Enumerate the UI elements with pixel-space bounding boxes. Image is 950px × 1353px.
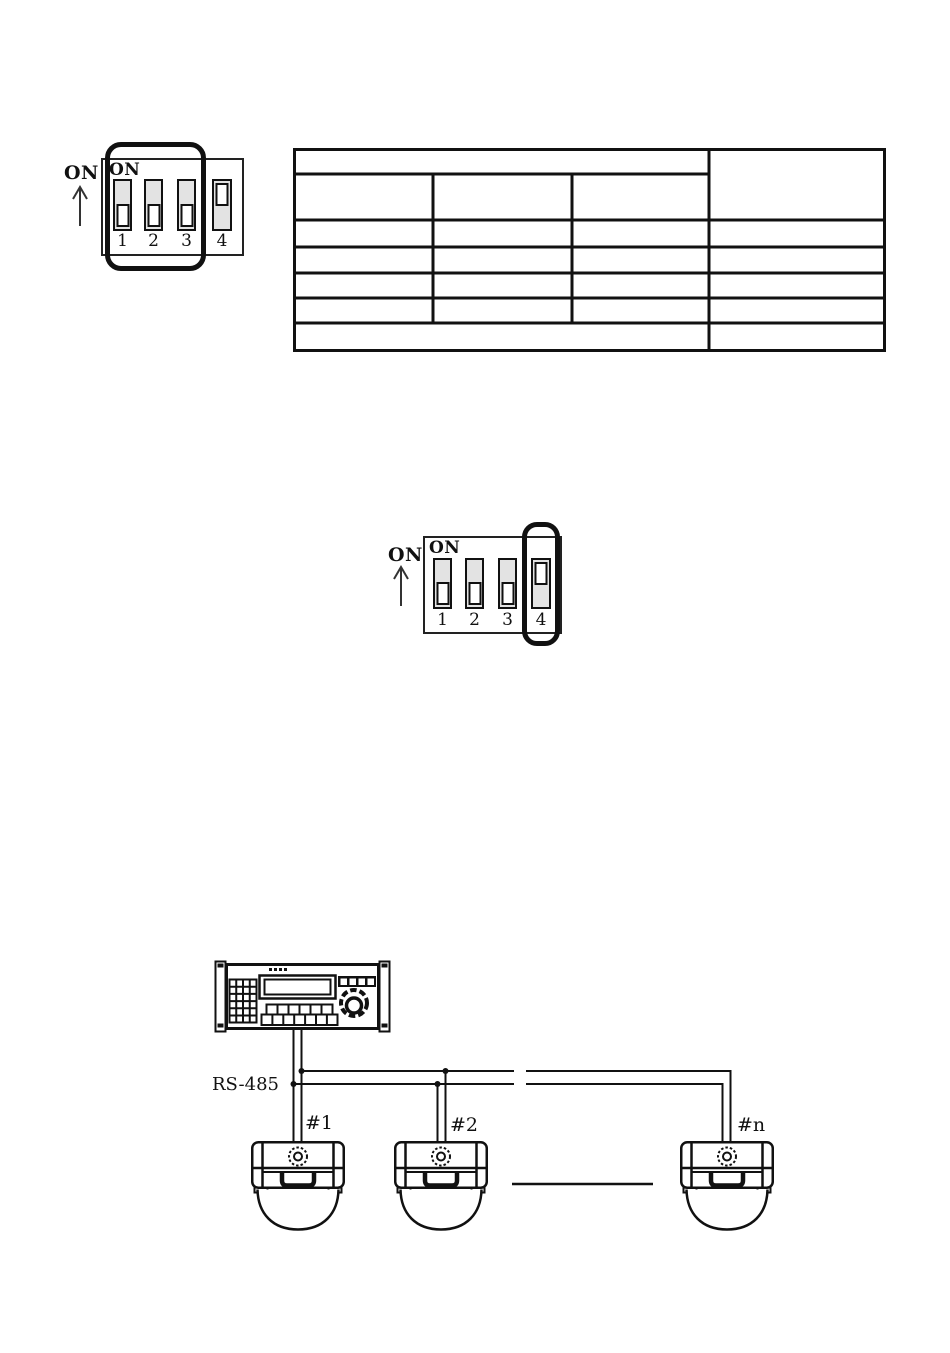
dip2-panel-label: ON <box>429 538 460 558</box>
dip1-switch-3-number: 3 <box>177 231 196 251</box>
dip-switch-diagram-2: ON ON 1 2 3 4 <box>370 500 590 670</box>
settings-table <box>293 148 886 352</box>
numeric-keypad <box>230 980 257 1023</box>
dip2-switch-2-number: 2 <box>465 610 484 630</box>
manual-page: ON ON 1 2 3 4 <box>0 0 950 1353</box>
dip1-direction-label: ON <box>64 162 99 184</box>
bus-upper-line <box>302 1071 731 1141</box>
dip2-switch-4 <box>531 558 551 609</box>
dip1-switch-4-number: 4 <box>212 231 232 251</box>
lcd-display <box>260 976 336 999</box>
camera-2-label: #2 <box>450 1114 478 1136</box>
dome-camera-n <box>681 1142 773 1229</box>
dip1-switch-3 <box>177 179 196 231</box>
wiring-diagram <box>180 955 800 1247</box>
dip2-switch-3-number: 3 <box>498 610 517 630</box>
dip1-switch-2-knob <box>147 204 160 227</box>
function-buttons <box>338 976 376 987</box>
dip1-switch-1-knob <box>116 204 129 227</box>
bus-lower-line <box>294 1084 723 1141</box>
dip1-panel-label: ON <box>109 160 140 180</box>
dip2-switch-2-knob <box>468 582 481 605</box>
camera-1-label: #1 <box>305 1112 333 1134</box>
rs485-bus-label: RS-485 <box>212 1074 279 1095</box>
bottom-key-rows <box>262 1005 338 1026</box>
dip2-arrow-up-icon <box>390 562 412 608</box>
dip2-switch-2 <box>465 558 484 609</box>
controller-left-rail <box>216 962 226 1032</box>
dip2-switch-1 <box>433 558 452 609</box>
joystick <box>341 990 367 1016</box>
dip1-switch-4 <box>212 179 232 231</box>
dome-camera-1 <box>252 1142 344 1229</box>
dome-camera-2 <box>395 1142 487 1229</box>
dip1-switch-4-knob <box>216 183 229 206</box>
dip2-switch-1-knob <box>436 582 449 605</box>
rs485-bus-lines <box>294 1029 731 1141</box>
keyboard-controller <box>216 962 390 1032</box>
dip-switch-diagram-1: ON ON 1 2 3 4 <box>0 0 260 290</box>
dip2-switch-1-number: 1 <box>433 610 452 630</box>
dip1-switch-2 <box>144 179 163 231</box>
camera-n-label: #n <box>737 1114 765 1136</box>
dip1-switch-3-knob <box>180 204 193 227</box>
controller-right-rail <box>380 962 390 1032</box>
dip2-switch-4-knob <box>535 562 548 585</box>
dip2-switch-4-number: 4 <box>531 610 551 630</box>
dip2-switch-3 <box>498 558 517 609</box>
dip2-switch-3-knob <box>501 582 514 605</box>
dip1-switch-1 <box>113 179 132 231</box>
dip1-arrow-up-icon <box>69 182 91 228</box>
dip1-switch-2-number: 2 <box>144 231 163 251</box>
dip1-switch-1-number: 1 <box>113 231 132 251</box>
